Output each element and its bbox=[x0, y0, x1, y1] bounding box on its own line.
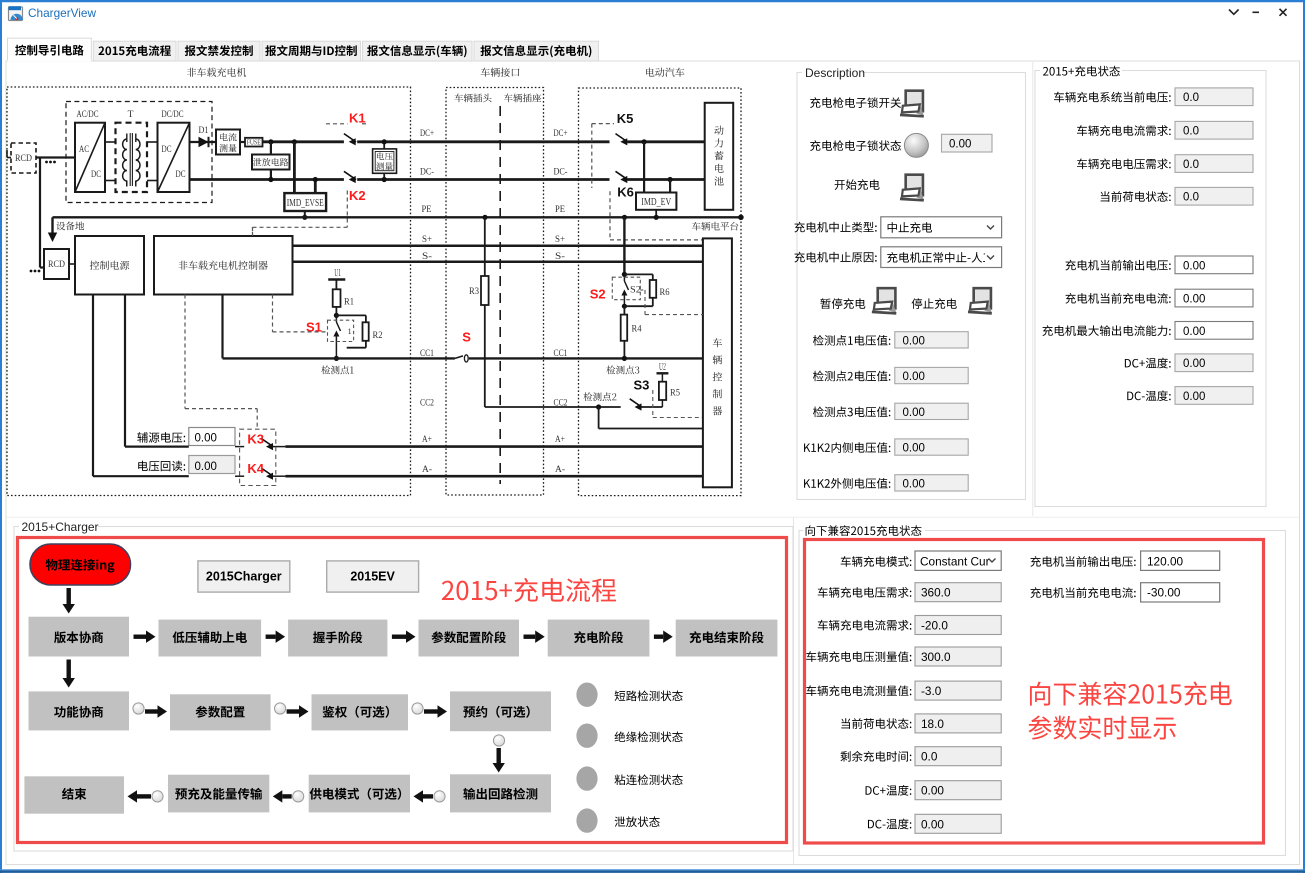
svg-text:0.00: 0.00 bbox=[195, 461, 217, 473]
svg-text:R4: R4 bbox=[632, 325, 642, 335]
svg-text:CC2: CC2 bbox=[420, 398, 434, 408]
svg-text:IMD_EVSE: IMD_EVSE bbox=[287, 198, 324, 209]
svg-text:S+: S+ bbox=[422, 235, 432, 245]
svg-text:0.00: 0.00 bbox=[1183, 326, 1205, 338]
svg-text:K4: K4 bbox=[247, 461, 264, 476]
svg-text:2015EV: 2015EV bbox=[350, 570, 395, 584]
svg-text:360.0: 360.0 bbox=[921, 586, 951, 600]
svg-text:DC/DC: DC/DC bbox=[162, 110, 184, 120]
svg-text:DC+: DC+ bbox=[554, 129, 568, 139]
svg-text:DC-: DC- bbox=[420, 168, 434, 178]
svg-text:FUSE: FUSE bbox=[247, 138, 261, 147]
svg-text:S-: S- bbox=[555, 252, 565, 262]
svg-text:A+: A+ bbox=[422, 435, 432, 445]
svg-text:R2: R2 bbox=[373, 331, 383, 341]
svg-text:K5: K5 bbox=[617, 111, 634, 126]
svg-text:ChargerView: ChargerView bbox=[28, 6, 96, 20]
svg-text:Constant Cur: Constant Cur bbox=[920, 554, 990, 568]
svg-text:DC-: DC- bbox=[554, 168, 568, 178]
svg-text:RCD: RCD bbox=[15, 154, 32, 164]
svg-text:R6: R6 bbox=[660, 288, 670, 298]
svg-text:0.00: 0.00 bbox=[921, 784, 944, 798]
svg-text:CC1: CC1 bbox=[554, 349, 568, 359]
svg-text:0.00: 0.00 bbox=[903, 371, 925, 383]
svg-text:DC+: DC+ bbox=[420, 129, 434, 139]
svg-text:0.00: 0.00 bbox=[903, 443, 925, 455]
svg-text:PE: PE bbox=[422, 205, 432, 215]
svg-text:R3: R3 bbox=[469, 287, 479, 297]
svg-text:K6: K6 bbox=[617, 185, 634, 200]
svg-text:0.00: 0.00 bbox=[903, 407, 925, 419]
svg-text:CC2: CC2 bbox=[554, 398, 568, 408]
svg-text:0.00: 0.00 bbox=[1183, 260, 1205, 272]
svg-text:0.00: 0.00 bbox=[1183, 294, 1205, 306]
svg-text:DC: DC bbox=[91, 170, 101, 180]
svg-text:2015+Charger: 2015+Charger bbox=[22, 520, 99, 534]
svg-text:S-: S- bbox=[422, 252, 432, 262]
svg-text:Description: Description bbox=[805, 66, 865, 80]
svg-text:R1: R1 bbox=[344, 298, 354, 308]
svg-text:0.0: 0.0 bbox=[1183, 126, 1199, 138]
svg-text:0.00: 0.00 bbox=[921, 817, 944, 831]
svg-text:S+: S+ bbox=[555, 235, 565, 245]
svg-text:0.00: 0.00 bbox=[1183, 391, 1205, 403]
svg-text:CC1: CC1 bbox=[420, 349, 434, 359]
svg-text:D1: D1 bbox=[199, 126, 209, 136]
svg-text:AC: AC bbox=[79, 145, 89, 155]
svg-text:K3: K3 bbox=[247, 432, 264, 447]
svg-text:300.0: 300.0 bbox=[921, 650, 951, 664]
svg-text:T: T bbox=[128, 110, 134, 120]
svg-text:S3: S3 bbox=[634, 378, 650, 393]
svg-text:RCD: RCD bbox=[48, 260, 65, 270]
svg-text:-30.00: -30.00 bbox=[1147, 586, 1181, 600]
svg-text:2015Charger: 2015Charger bbox=[206, 570, 282, 584]
svg-text:18.0: 18.0 bbox=[921, 717, 944, 731]
svg-text:A+: A+ bbox=[555, 435, 565, 445]
svg-text:A-: A- bbox=[422, 465, 432, 475]
svg-text:0.00: 0.00 bbox=[903, 478, 925, 490]
svg-text:0.0: 0.0 bbox=[1183, 159, 1199, 171]
svg-text:A-: A- bbox=[555, 465, 565, 475]
svg-text:120.00: 120.00 bbox=[1147, 554, 1184, 568]
svg-text:0.00: 0.00 bbox=[195, 432, 217, 444]
svg-text:S2: S2 bbox=[630, 286, 641, 296]
svg-text:PE: PE bbox=[555, 205, 565, 215]
svg-text:DC: DC bbox=[162, 145, 172, 155]
svg-text:0.0: 0.0 bbox=[1183, 92, 1199, 104]
svg-text:0.0: 0.0 bbox=[921, 750, 938, 764]
svg-text:1: 1 bbox=[348, 326, 352, 336]
svg-text:0.00: 0.00 bbox=[1183, 358, 1205, 370]
svg-text:0.0: 0.0 bbox=[1183, 192, 1199, 204]
svg-text:S2: S2 bbox=[590, 287, 606, 302]
svg-text:0.00: 0.00 bbox=[949, 138, 971, 150]
svg-text:IMD_EV: IMD_EV bbox=[641, 197, 671, 208]
svg-text:AC/DC: AC/DC bbox=[77, 110, 99, 120]
svg-text:0.00: 0.00 bbox=[903, 335, 925, 347]
svg-text:DC: DC bbox=[176, 170, 186, 180]
svg-text:S: S bbox=[462, 329, 471, 344]
svg-text:K2: K2 bbox=[349, 188, 366, 203]
svg-text:R5: R5 bbox=[670, 389, 680, 399]
svg-text:-20.0: -20.0 bbox=[921, 619, 948, 633]
svg-text:-3.0: -3.0 bbox=[921, 684, 942, 698]
